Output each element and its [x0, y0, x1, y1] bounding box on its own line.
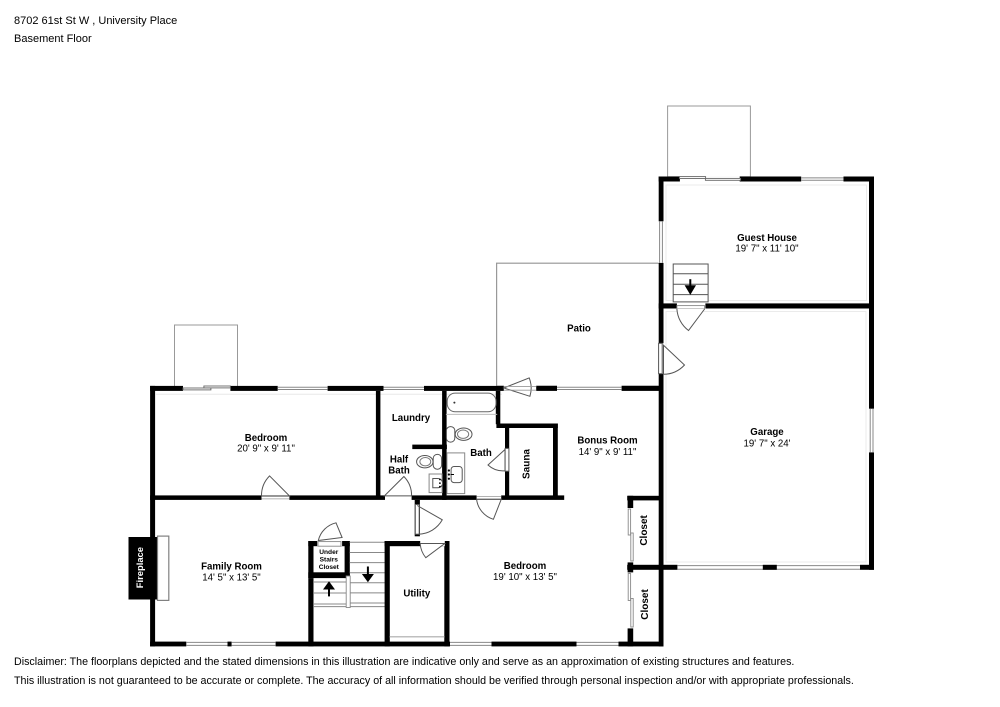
svg-text:Closet: Closet — [319, 564, 340, 571]
svg-text:Bath: Bath — [388, 466, 410, 477]
svg-text:Closet: Closet — [640, 589, 651, 620]
svg-text:Guest House: Guest House — [737, 233, 797, 244]
svg-text:Bath: Bath — [470, 448, 492, 459]
svg-text:14' 9" x 9' 11": 14' 9" x 9' 11" — [579, 447, 637, 458]
svg-text:Utility: Utility — [403, 588, 431, 599]
svg-text:Patio: Patio — [567, 324, 591, 335]
svg-text:Half: Half — [390, 454, 409, 465]
svg-text:19' 7" x 11' 10": 19' 7" x 11' 10" — [735, 244, 799, 255]
svg-text:Sauna: Sauna — [522, 449, 533, 479]
svg-text:20' 9" x 9' 11": 20' 9" x 9' 11" — [237, 444, 295, 455]
svg-text:19' 10" x 13' 5": 19' 10" x 13' 5" — [493, 572, 557, 583]
svg-text:Closet: Closet — [639, 514, 650, 545]
svg-text:Garage: Garage — [750, 427, 784, 438]
svg-text:Under: Under — [319, 549, 338, 556]
svg-text:Stairs: Stairs — [320, 557, 339, 564]
svg-text:Bedroom: Bedroom — [245, 433, 288, 444]
svg-text:19' 7" x 24': 19' 7" x 24' — [744, 439, 791, 450]
svg-text:14' 5" x 13' 5": 14' 5" x 13' 5" — [202, 573, 261, 584]
svg-text:Laundry: Laundry — [392, 413, 431, 424]
svg-text:Family Room: Family Room — [201, 562, 262, 573]
svg-text:Fireplace: Fireplace — [134, 547, 145, 588]
svg-text:Bonus Room: Bonus Room — [577, 436, 638, 447]
svg-text:Bedroom: Bedroom — [504, 561, 547, 572]
